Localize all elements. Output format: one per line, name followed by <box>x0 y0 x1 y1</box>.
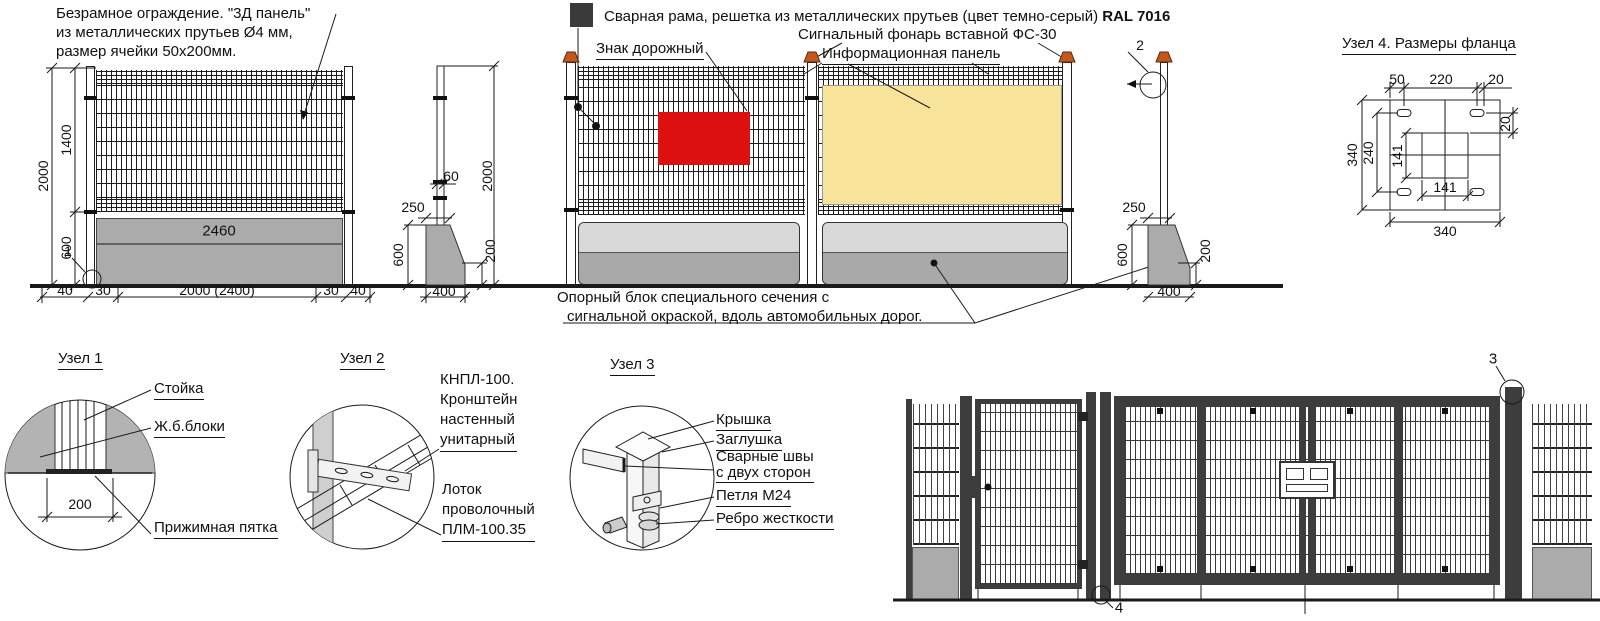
double-gate-bottom-rail <box>1114 574 1500 585</box>
node1-base-width: 200 <box>68 496 91 512</box>
node1-heel-label-text: Прижимная пятка <box>154 518 278 539</box>
info-panel-label-text: Информационная панель <box>822 44 1000 65</box>
n4-post-size-v: 141 <box>1389 144 1405 167</box>
node1-title: Узел 1 <box>58 349 103 370</box>
node3-rib-label-text: Ребро жесткости <box>716 509 834 530</box>
node2-callout: 2 <box>1136 37 1144 53</box>
dim-bottom-5: 40 <box>350 282 366 298</box>
node1-callout: 1 <box>64 243 72 259</box>
dim-bottom-1: 40 <box>57 282 73 298</box>
dim-block-h-l: 600 <box>390 243 406 266</box>
wicket-lock <box>971 476 980 498</box>
gate-side-block-right <box>1532 547 1592 600</box>
node3-cap-label-text: Крышка <box>716 410 771 431</box>
support-block-1-top <box>579 223 799 253</box>
node3-rib-label: Ребро жесткости <box>716 509 834 530</box>
signal-lamp-label: Сигнальный фонарь вставной ФС-30 <box>798 25 1057 44</box>
dim-bottom-3: 2000 (2400) <box>179 282 255 298</box>
n4-post-size-h: 141 <box>1433 179 1456 195</box>
gate-lock-bar <box>1286 484 1328 492</box>
node3-cap-label: Крышка <box>716 410 771 431</box>
dim-block-edge-l: 200 <box>482 239 498 262</box>
dim-block-edge-r: 200 <box>1197 239 1213 262</box>
gate-base-callout: 4 <box>1115 600 1123 617</box>
panel-note: Безрамное ограждение. "3Д панель" из мет… <box>56 4 310 61</box>
n4-top-left: 50 <box>1389 71 1405 87</box>
road-sign-label-text: Знак дорожный <box>596 39 704 60</box>
node1-title-text: Узел 1 <box>58 349 103 370</box>
node2-bracket-label: КНПЛ-100. Кронштейн настенный унитарный <box>440 370 517 452</box>
n4-top-right: 20 <box>1488 71 1504 87</box>
support-block-2-top <box>823 223 1067 253</box>
node1-post-label: Стойка <box>154 379 204 400</box>
left-fence-mesh <box>96 84 343 198</box>
support-block-1 <box>578 222 800 285</box>
gate-lock-detail-right <box>1310 468 1328 480</box>
wicket-gate <box>975 399 1082 589</box>
n4-outer-width: 340 <box>1433 223 1456 239</box>
left-fence-mesh-bottom-band <box>96 198 343 212</box>
n4-top-center: 220 <box>1429 71 1452 87</box>
signal-lamp-label-text: Сигнальный фонарь вставной ФС-30 <box>798 26 1057 43</box>
node2-drawing <box>290 403 441 551</box>
node3-drawing <box>570 406 714 550</box>
node3-title: Узел 3 <box>610 355 655 376</box>
dim-post-width: 60 <box>443 168 459 184</box>
panel-note-line3: размер ячейки 50х200мм. <box>56 42 310 61</box>
panel-note-line1: Безрамное ограждение. "3Д панель" <box>56 4 310 23</box>
info-panel <box>822 85 1062 205</box>
gate-side-panel-left <box>913 404 959 545</box>
ral7016-swatch <box>570 3 593 27</box>
node3-title-text: Узел 3 <box>610 355 655 376</box>
mid-mesh-top-band-2 <box>818 66 1062 80</box>
dim-block-base-l: 400 <box>432 283 455 299</box>
dim-block-top-r: 250 <box>1122 199 1145 215</box>
gate-stile-4 <box>1394 396 1403 585</box>
gate-side-panel-right <box>1532 404 1592 545</box>
gate-lock-box <box>1279 461 1335 499</box>
gate-hinge-callout: 3 <box>1489 351 1497 368</box>
gate-post-2a <box>1086 392 1096 600</box>
road-sign <box>658 112 750 165</box>
info-panel-label: Информационная панель <box>822 44 1000 65</box>
node2-title: Узел 2 <box>340 349 385 370</box>
support-note-line2: сигнальной окраской, вдоль автомобильных… <box>557 307 922 326</box>
n4-outer-height: 340 <box>1344 143 1360 166</box>
road-sign-label: Знак дорожный <box>596 39 704 60</box>
node2-bracket-label-text: КНПЛ-100. Кронштейн настенный унитарный <box>440 370 517 452</box>
node4-title-text: Узел 4. Размеры фланца <box>1342 34 1516 55</box>
left-fence-mesh-top-band <box>96 70 343 84</box>
node1-post-label-text: Стойка <box>154 379 204 400</box>
dim-block-top-l: 250 <box>401 199 424 215</box>
left-fence-post-left <box>86 66 95 286</box>
gate-lock-detail-left <box>1286 468 1304 480</box>
mid-fence-post-1 <box>566 62 576 286</box>
ral-code: RAL 7016 <box>1102 8 1170 25</box>
dim-block-base-r: 400 <box>1157 283 1180 299</box>
n4-right-offset: 20 <box>1497 116 1513 132</box>
mid-mesh-top-band-1 <box>578 66 805 80</box>
frame-note-text: Сварная рама, решетка из металлических п… <box>604 8 1102 25</box>
node2-tray-label: Лоток проволочный ПЛМ-100.35 <box>442 480 535 542</box>
support-block-note: Опорный блок специального сечения с сигн… <box>557 288 922 326</box>
dim-block-h-r: 600 <box>1114 243 1130 266</box>
left-fence-post-right <box>344 66 353 286</box>
gate-stile-2 <box>1197 396 1206 585</box>
gate-stile-1 <box>1114 396 1125 585</box>
frame-note: Сварная рама, решетка из металлических п… <box>604 7 1170 26</box>
dim-bottom-4: 30 <box>323 282 339 298</box>
double-gate-top-rail <box>1114 396 1500 407</box>
support-block-2 <box>822 222 1068 285</box>
n4-holes-spacing: 240 <box>1360 141 1376 164</box>
node3-hinge-label-text: Петля М24 <box>716 486 791 507</box>
mid-mesh-bottom-band-1 <box>578 200 805 215</box>
node3-hinge-label: Петля М24 <box>716 486 791 507</box>
support-note-line1: Опорный блок специального сечения с <box>557 288 922 307</box>
gate-stile-5 <box>1489 396 1500 585</box>
node3-weld-label-text: Сварные швы с двух сторон <box>716 449 814 483</box>
node1-drawing <box>2 390 162 550</box>
node1-blocks-label: Ж.б.блоки <box>154 417 225 438</box>
side-post-right <box>1160 62 1168 286</box>
node1-blocks-label-text: Ж.б.блоки <box>154 417 225 438</box>
gate-side-block-left <box>912 547 959 600</box>
dim-mesh-height: 1400 <box>58 124 74 155</box>
drawing-canvas: Безрамное ограждение. "3Д панель" из мет… <box>0 0 1600 621</box>
node4-title: Узел 4. Размеры фланца <box>1342 34 1516 55</box>
node2-tray-label-text: Лоток проволочный ПЛМ-100.35 <box>442 480 535 542</box>
gate-post-2b <box>1100 392 1111 600</box>
gate-post-1 <box>960 396 972 600</box>
node2-title-text: Узел 2 <box>340 349 385 370</box>
gate-hinge-post <box>1505 387 1522 600</box>
dim-bottom-2: 30 <box>95 282 111 298</box>
dim-block-length: 2460 <box>202 223 235 240</box>
node4-drawing <box>1357 82 1518 227</box>
node1-heel-label: Прижимная пятка <box>154 518 278 539</box>
dim-total-height: 2000 <box>35 160 51 191</box>
panel-note-line2: из металлических прутьев Ø4 мм, <box>56 23 310 42</box>
dim-post-height: 2000 <box>479 160 495 191</box>
node3-weld-label: Сварные швы с двух сторон <box>716 449 814 483</box>
mid-fence-post-2 <box>807 62 817 286</box>
